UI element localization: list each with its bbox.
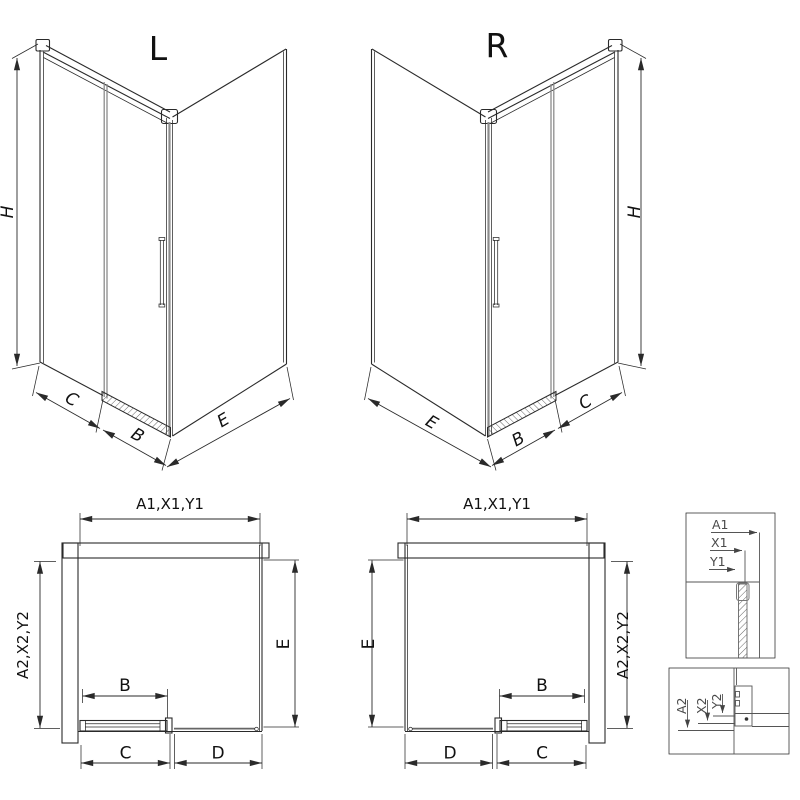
detail-wall-profile-width: A1 X1 Y1 xyxy=(686,513,775,658)
plan-r-dim-b: B xyxy=(536,676,548,696)
plan-l-dim-b: B xyxy=(119,676,131,696)
figure-r-dim-c: C xyxy=(575,391,595,414)
detail-a1-label: A1 xyxy=(712,517,729,532)
plan-view-geometry xyxy=(34,513,299,769)
side-panel-plan xyxy=(260,543,263,731)
plan-r-dim-d: D xyxy=(443,744,456,764)
wall-band-top xyxy=(63,543,269,558)
figure-l-dim-e: E xyxy=(214,409,234,432)
plan-r-dim-c: C xyxy=(536,744,548,764)
detail-x1-label: X1 xyxy=(711,535,728,550)
plan-r-dim-right: A2,X2,Y2 xyxy=(614,611,632,679)
dimension-bottom-segments xyxy=(81,734,262,769)
plan-l-dim-right: E xyxy=(274,639,294,650)
detail-box-frame xyxy=(686,513,775,658)
corner-post xyxy=(167,118,173,436)
sliding-door-edge xyxy=(104,82,107,399)
figure-r-dim-e: E xyxy=(422,411,442,434)
shower-enclosure-diagram: L H C B E R H E B C xyxy=(0,0,800,800)
plan-view-geometry-mirrored xyxy=(368,513,633,769)
plan-l-dim-d: D xyxy=(211,744,224,764)
wall-strip-section xyxy=(739,584,748,658)
door-track-plan xyxy=(80,718,172,733)
detail-y2-label: Y2 xyxy=(709,693,724,710)
technical-drawing-page: L H C B E R H E B C xyxy=(0,0,800,800)
wall-band-side xyxy=(62,543,78,743)
dimension-side-width xyxy=(167,367,294,467)
detail-a2-label: A2 xyxy=(674,697,689,714)
bottom-sill xyxy=(40,362,171,437)
figure-r-title: R xyxy=(486,26,509,65)
bottom-rail-profile xyxy=(735,686,752,726)
iso-enclosure-geometry-mirrored xyxy=(365,40,647,471)
iso-enclosure-geometry xyxy=(12,40,294,471)
back-glass-edge xyxy=(40,50,44,363)
dimension-top-width xyxy=(80,513,260,546)
detail-y1-label: Y1 xyxy=(709,554,726,569)
figure-l-dim-b: B xyxy=(127,424,147,447)
door-handle xyxy=(159,238,165,308)
plan-r-dim-top: A1,X1,Y1 xyxy=(463,495,531,513)
figure-r-dim-h: H xyxy=(625,205,645,218)
plan-l-dim-left: A2,X2,Y2 xyxy=(14,611,32,679)
figure-l-dim-h: H xyxy=(0,205,18,218)
dimension-left-depth xyxy=(34,562,60,729)
detail-x2-label: X2 xyxy=(694,697,709,714)
plan-l-dim-top: A1,X1,Y1 xyxy=(136,495,204,513)
rail-end-cap xyxy=(36,40,50,52)
figure-r-dim-b: B xyxy=(509,428,529,451)
plan-r-dim-left: E xyxy=(359,639,379,650)
detail-bottom-rail-depth: A2 X2 Y2 xyxy=(669,668,789,754)
side-glass-panel xyxy=(173,49,287,436)
plan-l-dim-c: C xyxy=(120,744,132,764)
figure-l-title: L xyxy=(149,29,168,68)
figure-l-dim-c: C xyxy=(61,388,81,411)
fixed-panel-plan xyxy=(174,727,258,731)
